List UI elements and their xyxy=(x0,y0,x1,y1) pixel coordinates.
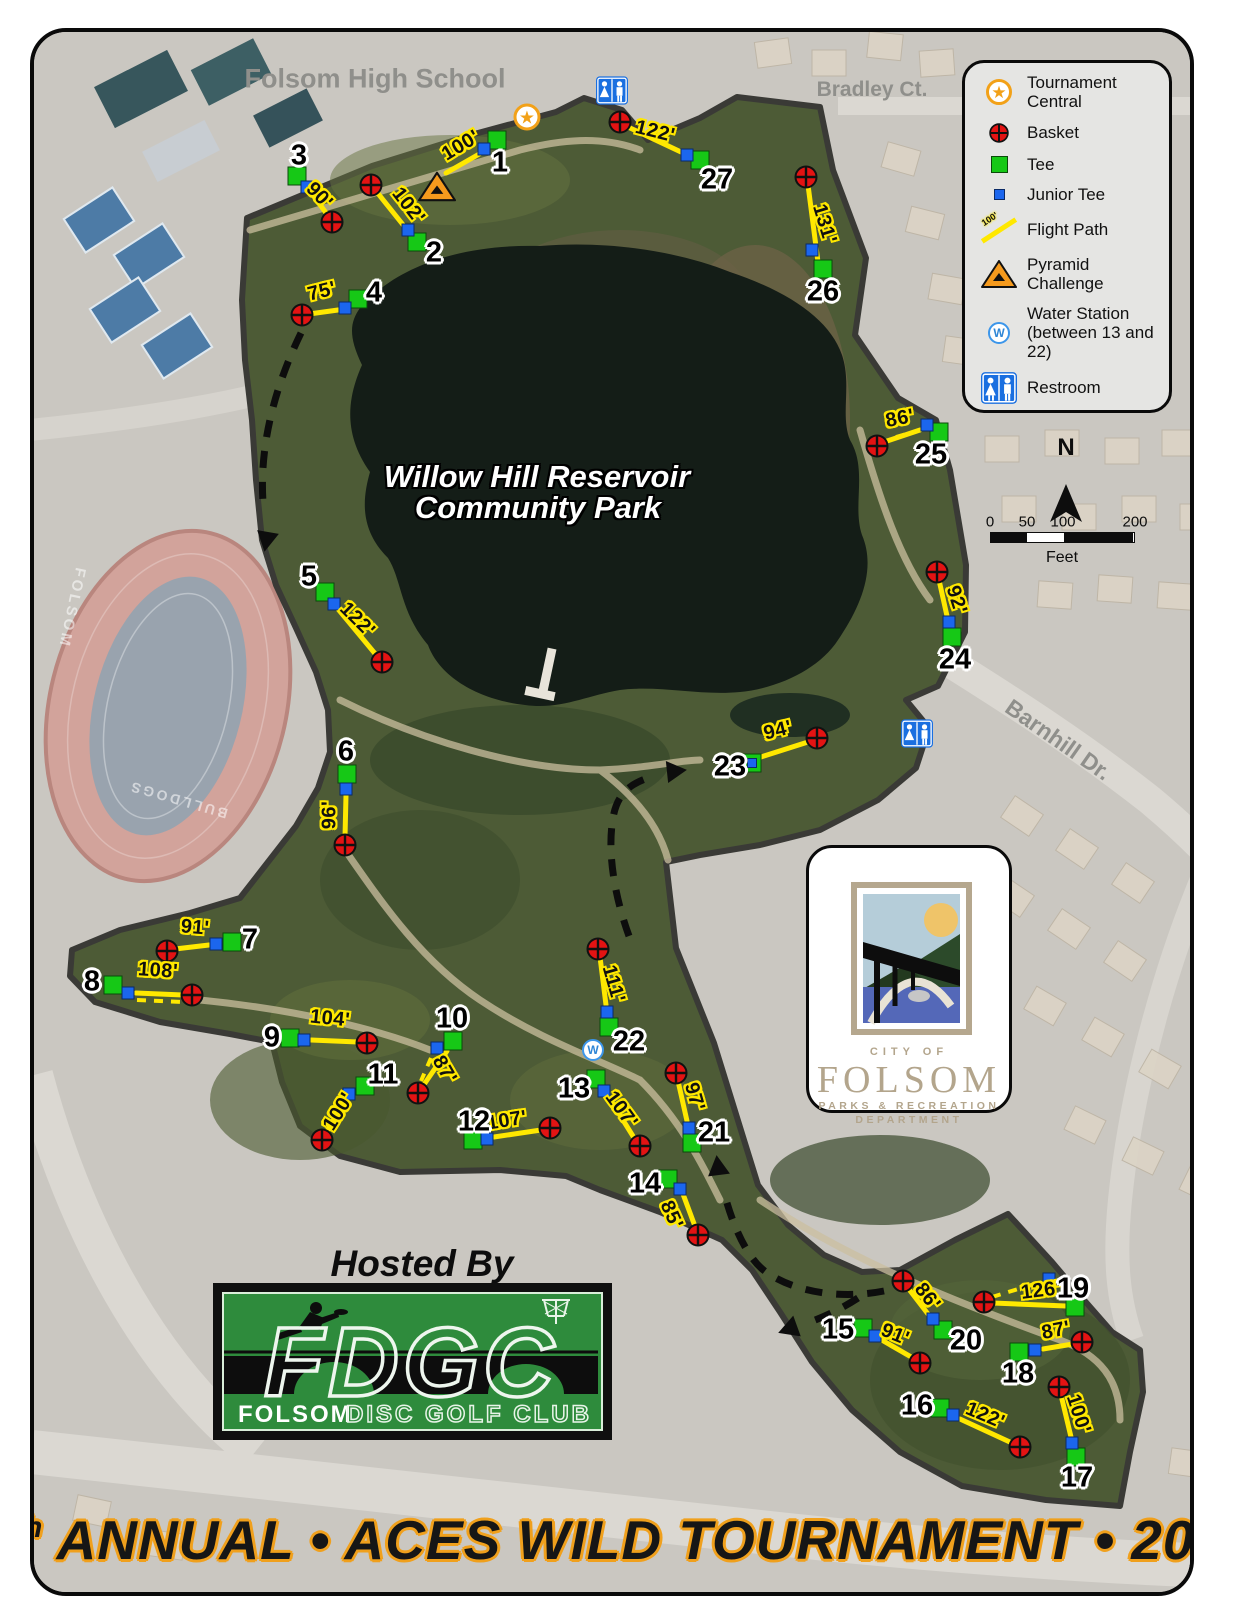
city-logo-dept1: PARKS & RECREATION xyxy=(809,1100,1009,1112)
hole-5-distance-label: 122' xyxy=(335,598,380,643)
restroom-icon xyxy=(971,372,1027,404)
city-of-folsom-logo: CITY OF FOLSOM PARKS & RECREATION DEPART… xyxy=(806,845,1012,1113)
restroom-map-icon-1 xyxy=(596,76,628,110)
hole-26-distance-label: 131' xyxy=(807,201,841,246)
hole-10-number: 10 xyxy=(436,1003,468,1036)
legend-row-pyramid-challenge: Pyramid Challenge xyxy=(971,255,1161,293)
legend-row-junior-tee: Junior Tee xyxy=(971,185,1161,204)
fdgc-club-name-outline: DISC GOLF CLUB xyxy=(346,1401,592,1426)
fdgc-club-name-bold: FOLSOM xyxy=(238,1401,353,1426)
hole-20-number: 20 xyxy=(950,1325,982,1358)
hole-5-number: 5 xyxy=(301,561,317,594)
legend-label: Pyramid Challenge xyxy=(1027,255,1161,293)
hosted-by-label: Hosted By xyxy=(331,1243,514,1285)
hole-6-number: 6 xyxy=(338,736,354,769)
tournament-central-star-icon: ★ xyxy=(514,104,541,131)
hole-24-basket xyxy=(924,559,950,585)
water-station-map-icon: W xyxy=(582,1039,604,1061)
hole-9-distance-label: 104' xyxy=(309,1005,351,1032)
title-superscript: th xyxy=(30,1511,42,1544)
hole-25-number: 25 xyxy=(915,439,947,472)
hole-14-basket xyxy=(685,1222,711,1248)
hole-8-number: 8 xyxy=(84,966,100,999)
hole-14-number: 14 xyxy=(629,1168,661,1201)
hole-16-distance-label: 122' xyxy=(962,1398,1008,1435)
legend-row-tee: Tee xyxy=(971,155,1161,174)
fdgc-club-logo: FDGC FOLSOM DISC GOLF CLUB xyxy=(213,1283,612,1440)
hole-14-junior-tee xyxy=(674,1183,687,1196)
fdgc-logo-inner: FDGC FOLSOM DISC GOLF CLUB xyxy=(222,1292,603,1431)
flight-path-sample-distance: 100' xyxy=(980,211,1000,229)
hole-23-distance-label: 94' xyxy=(761,716,794,745)
hole-9-basket xyxy=(354,1030,380,1056)
hole-2-basket xyxy=(358,172,384,198)
scale-tick-0: 0 xyxy=(986,514,994,531)
hole-9-number: 9 xyxy=(264,1022,280,1055)
junior-tee-icon xyxy=(971,189,1027,200)
hole-24-number: 24 xyxy=(939,644,971,677)
hole-7-tee xyxy=(223,933,242,952)
hole-24-junior-tee xyxy=(943,616,956,629)
hole-12-distance-label: 107' xyxy=(485,1107,528,1136)
hole-22-distance-label: 111' xyxy=(597,963,630,1006)
hole-10-junior-tee xyxy=(431,1042,444,1055)
hole-25-distance-label: 86' xyxy=(884,405,916,433)
hole-18-junior-tee xyxy=(1029,1344,1042,1357)
compass-north-label: N xyxy=(1057,434,1074,462)
legend-row-restroom: Restroom xyxy=(971,372,1161,404)
tee-icon xyxy=(971,156,1027,173)
hole-16-number: 16 xyxy=(901,1390,933,1423)
hole-27-junior-tee xyxy=(681,149,694,162)
hole-26-number: 26 xyxy=(807,276,839,309)
scale-tick-200: 200 xyxy=(1122,514,1147,531)
map-credit: Map Prepared By: Ben Mundell, Folsom DGC… xyxy=(1189,54,1195,422)
hole-27-number: 27 xyxy=(701,164,733,197)
hole-26-basket xyxy=(793,164,819,190)
hole-19-number: 19 xyxy=(1057,1273,1089,1306)
hole-21-distance-label: 97' xyxy=(679,1080,709,1114)
city-logo-name: FOLSOM xyxy=(809,1058,1009,1102)
hole-12-basket xyxy=(537,1115,563,1141)
hole-8-junior-tee xyxy=(122,987,135,1000)
legend-label: Tournament Central xyxy=(1027,73,1161,111)
hole-6-junior-tee xyxy=(340,783,353,796)
hole-17-junior-tee xyxy=(1066,1437,1079,1450)
pyramid-challenge-icon xyxy=(971,260,1027,288)
flight-path-icon: 100' xyxy=(971,214,1027,244)
hole-27-distance-label: 122' xyxy=(633,116,677,148)
map-world: Folsom High School Bradley Ct. Barnhill … xyxy=(30,28,1194,1596)
scale-bar xyxy=(990,532,1135,543)
hole-10-distance-label: 87' xyxy=(427,1052,461,1088)
tournament-course-map-page: Folsom High School Bradley Ct. Barnhill … xyxy=(0,0,1248,1620)
hole-17-number: 17 xyxy=(1061,1462,1093,1495)
legend-row-flight-path: 100' Flight Path xyxy=(971,214,1161,244)
hole-1-distance-label: 100' xyxy=(438,126,484,166)
basket-icon xyxy=(971,122,1027,144)
hole-23-junior-tee xyxy=(747,758,757,768)
hole-21-basket xyxy=(663,1060,689,1086)
hole-26-junior-tee xyxy=(806,244,819,257)
hole-18-basket xyxy=(1069,1329,1095,1355)
legend-label: Tee xyxy=(1027,155,1054,174)
hole-13-basket xyxy=(627,1133,653,1159)
hole-15-distance-label: 91' xyxy=(877,1319,912,1351)
tournament-title: 6th ANNUAL • ACES WILD TOURNAMENT • 2022 xyxy=(30,1508,1194,1572)
hole-18-number: 18 xyxy=(1002,1358,1034,1391)
hole-27-basket xyxy=(607,109,633,135)
hole-7-number: 7 xyxy=(242,924,258,957)
scale-unit-label: Feet xyxy=(1046,549,1078,567)
title-rest: ANNUAL • ACES WILD TOURNAMENT • 2022 xyxy=(42,1509,1194,1571)
hole-25-basket xyxy=(864,433,890,459)
hole-17-distance-label: 100' xyxy=(1061,1391,1095,1436)
hole-23-basket xyxy=(804,725,830,751)
hole-18-distance-label: 87' xyxy=(1040,1317,1072,1345)
hole-14-distance-label: 85' xyxy=(655,1197,688,1232)
hole-4-junior-tee xyxy=(339,302,352,315)
hole-3-number: 3 xyxy=(291,140,307,173)
hole-21-junior-tee xyxy=(683,1122,696,1135)
tournament-central-icon: ★ xyxy=(971,79,1027,105)
hole-7-junior-tee xyxy=(210,938,223,951)
scale-tick-100: 100 xyxy=(1050,514,1075,531)
hole-24-distance-label: 92' xyxy=(941,583,972,617)
hole-3-basket xyxy=(319,209,345,235)
hole-13-number: 13 xyxy=(558,1073,590,1106)
hole-22-basket xyxy=(585,936,611,962)
hole-16-junior-tee xyxy=(947,1409,960,1422)
fdgc-logo-art: FDGC FOLSOM DISC GOLF CLUB xyxy=(224,1294,598,1426)
legend-label: Restroom xyxy=(1027,378,1101,397)
hole-5-basket xyxy=(369,649,395,675)
city-logo-dept2: DEPARTMENT xyxy=(809,1114,1009,1126)
hole-15-number: 15 xyxy=(822,1314,854,1347)
hole-21-number: 21 xyxy=(698,1117,730,1150)
hole-16-basket xyxy=(1007,1434,1033,1460)
city-logo-cityof: CITY OF xyxy=(809,1046,1009,1058)
hole-12-number: 12 xyxy=(458,1106,490,1139)
restroom-map-icon-2 xyxy=(901,719,933,753)
map-border-frame: Folsom High School Bradley Ct. Barnhill … xyxy=(30,28,1194,1596)
hole-9-junior-tee xyxy=(298,1034,311,1047)
hole-19-basket xyxy=(971,1289,997,1315)
hole-7-distance-label: 91' xyxy=(180,915,210,940)
legend-row-basket: Basket xyxy=(971,122,1161,144)
hole-8-basket xyxy=(179,982,205,1008)
hole-22-junior-tee xyxy=(601,1006,614,1019)
pyramid-challenge-map-icon xyxy=(418,172,456,207)
hole-8-tee xyxy=(104,976,123,995)
legend: ★ Tournament Central Basket Tee Junior T… xyxy=(962,60,1172,413)
hole-25-junior-tee xyxy=(921,419,934,432)
legend-row-tournament-central: ★ Tournament Central xyxy=(971,73,1161,111)
hole-10-basket xyxy=(405,1080,431,1106)
hole-15-basket xyxy=(907,1350,933,1376)
hole-4-number: 4 xyxy=(366,277,382,310)
hole-23-number: 23 xyxy=(714,751,746,784)
bridge-artwork xyxy=(851,882,972,1035)
water-station-icon: W xyxy=(971,322,1027,344)
legend-row-water-station: W Water Station (between 13 and 22) xyxy=(971,304,1161,361)
hole-6-basket xyxy=(332,832,358,858)
scale-tick-50: 50 xyxy=(1019,514,1036,531)
legend-label: Water Station (between 13 and 22) xyxy=(1027,304,1161,361)
legend-label: Junior Tee xyxy=(1027,185,1105,204)
hole-4-distance-label: 75' xyxy=(305,277,338,306)
hole-2-number: 2 xyxy=(426,237,442,270)
hole-11-number: 11 xyxy=(368,1059,399,1092)
hole-1-number: 1 xyxy=(492,147,508,180)
hole-6-distance-label: 96' xyxy=(319,801,342,830)
hole-22-number: 22 xyxy=(613,1026,645,1059)
legend-label: Flight Path xyxy=(1027,220,1108,239)
legend-label: Basket xyxy=(1027,123,1079,142)
hole-8-distance-label: 108' xyxy=(137,958,179,984)
